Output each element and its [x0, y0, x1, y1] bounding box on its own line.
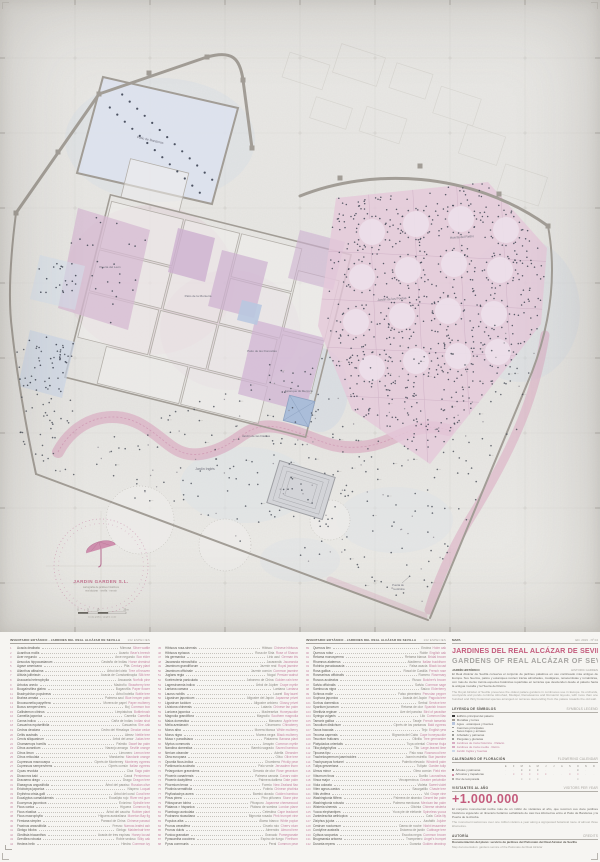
species-common: Mandarino: [109, 755, 124, 759]
species-common: Palmera datilera: [259, 778, 282, 782]
species-common-en: Seville orange: [130, 746, 150, 750]
leader-dots: [56, 796, 107, 800]
species-number: 124: [306, 805, 313, 809]
map-area: Patio de BanderasPuerta del LeónPatio de…: [0, 0, 600, 632]
leader-dots: [201, 768, 250, 772]
species-common: Palo verde: [258, 764, 273, 768]
species-common-en: Black locust: [429, 664, 446, 668]
species-number: 47: [158, 655, 165, 659]
species-number: 18: [10, 723, 17, 727]
species-common: Tulipán: [417, 764, 427, 768]
species-common-en: Japanese cheesewood: [265, 801, 298, 805]
species-latin: Cordyline australis: [313, 828, 339, 832]
species-number: 6: [10, 669, 17, 673]
species-latin: Prunus dulcis: [165, 828, 184, 832]
leader-dots: [38, 718, 110, 722]
species-common-en: Common sage: [425, 683, 446, 687]
species-common: Glicinia: [411, 805, 421, 809]
leader-dots: [338, 687, 419, 691]
leader-dots: [332, 777, 397, 781]
leader-dots: [53, 700, 102, 704]
scale-25: 25 m: [123, 610, 128, 612]
leader-dots: [344, 837, 404, 841]
legend-marker-icon: [452, 750, 455, 753]
leader-dots: [336, 718, 411, 722]
species-common: Olivo: [276, 755, 283, 759]
species-common: Trompetero: [406, 837, 422, 841]
leader-dots: [48, 741, 114, 745]
species-common-en: Russian olive: [131, 783, 150, 787]
species-number: 71: [158, 764, 165, 768]
species-number: 45: [158, 646, 165, 650]
address-block: Patronato del Real Alcázar Patio de Band…: [452, 851, 598, 852]
legend-marker-icon: [452, 742, 455, 745]
species-common-en: New Zealand flax: [273, 783, 298, 787]
legend-item: Jardín Inglés y huertas: [452, 749, 598, 753]
species-number: 68: [158, 751, 165, 755]
visitors-title: VISITANTES AL AÑO: [452, 786, 488, 790]
leader-dots: [346, 800, 391, 804]
visitors-section-header: VISITANTES AL AÑO VISITORS PER YEAR: [452, 786, 598, 792]
species-latin: Platanus × hispanica: [165, 805, 195, 809]
species-number: 60: [158, 714, 165, 718]
species-latin: Jasminum grandiflorum: [165, 664, 198, 668]
species-number: 42: [10, 833, 17, 837]
species-number: 118: [306, 778, 313, 782]
species-number: 131: [306, 837, 313, 841]
leader-dots: [336, 818, 421, 822]
species-common-en: Date palm: [283, 778, 298, 782]
species-common-en: Paper flower: [132, 687, 150, 691]
species-latin: Laurus nobilis: [165, 692, 185, 696]
species-number: 115: [306, 764, 313, 768]
species-common-en: Butcher's broom: [423, 678, 446, 682]
species-common-en: Chinese thuja: [427, 742, 447, 746]
species-latin: Ulmus minor: [313, 769, 331, 773]
species-number: 129: [306, 828, 313, 832]
species-latin: Callistemon citrinus: [17, 710, 45, 714]
species-common-en: Common jasmine: [273, 669, 298, 673]
species-latin: Syringa vulgaris: [313, 714, 336, 718]
species-number: 19: [10, 728, 17, 732]
species-common: Laurel: [273, 692, 282, 696]
species-number: 59: [158, 710, 165, 714]
leader-dots: [346, 759, 400, 763]
map-label: Puerta del León: [99, 265, 121, 269]
species-number: 63: [158, 728, 165, 732]
species-common: Latania: [261, 705, 271, 709]
leader-dots: [39, 655, 113, 659]
species-common: Pita: [124, 664, 130, 668]
species-number: 107: [306, 728, 313, 732]
species-common-en: Bottle tree: [135, 692, 150, 696]
species-latin: Ficus macrophylla: [17, 814, 43, 818]
credits-title: AUTORÍA: [452, 834, 469, 838]
leader-dots: [48, 823, 110, 827]
species-latin: Musa × paradisiaca: [165, 737, 193, 741]
species-number: 5: [10, 664, 17, 668]
leader-dots: [337, 841, 408, 845]
calendar-mark: ×: [518, 777, 526, 782]
leader-dots: [340, 696, 401, 700]
species-number: 52: [158, 678, 165, 682]
legend-title: LEYENDA DE SÍMBOLOS: [452, 707, 496, 711]
leader-dots: [336, 773, 417, 777]
species-number: 10: [10, 687, 17, 691]
species-latin: Pyrus communis: [165, 842, 189, 846]
species-common-en: Rose geranium: [276, 769, 298, 773]
species-number: 53: [158, 683, 165, 687]
species-common-en: Golden rain tree: [275, 678, 298, 682]
species-common-en: Common lilac: [427, 714, 446, 718]
species-number: 13: [10, 701, 17, 705]
species-number: 27: [10, 764, 17, 768]
leader-dots: [350, 814, 424, 818]
species-common-en: Firethorn: [285, 837, 298, 841]
species-number: 104: [306, 714, 313, 718]
species-number: 49: [158, 664, 165, 668]
species-common: Palo rosa: [409, 751, 422, 755]
species-latin: Schinus molle: [313, 692, 333, 696]
calendar-mark: [550, 777, 558, 782]
species-column-header: INVENTARIO BOTÁNICO · JARDINES DEL REAL …: [10, 638, 150, 644]
leader-dots: [197, 805, 249, 809]
species-common: Pino piñonero: [261, 796, 281, 800]
species-common-en: Dragon tree: [133, 778, 150, 782]
species-latin: Pelargonium graveolens: [165, 769, 199, 773]
species-number: 9: [10, 683, 17, 687]
species-common-en: Honeysuckle: [280, 710, 298, 714]
species-latin: Olea europaea: [165, 755, 186, 759]
species-common-en: River red gum: [130, 796, 150, 800]
species-number: 35: [10, 801, 17, 805]
species-number: 125: [306, 810, 313, 814]
species-common: Aladierno: [408, 660, 421, 664]
leader-dots: [36, 805, 118, 809]
species-common: Almez: [125, 733, 134, 737]
visitors-paragraph-en: The monument welcomes over one million v…: [452, 821, 598, 829]
species-number: 20: [10, 733, 17, 737]
calendar-mark: ×: [574, 777, 582, 782]
species-latin: Punica granatum: [165, 833, 189, 837]
species-number: 128: [306, 824, 313, 828]
species-latin: Ruscus aculeatus: [313, 678, 338, 682]
species-number: 84: [158, 824, 165, 828]
species-common-en: Mexican fan palm: [421, 801, 446, 805]
crop-mark: [591, 2, 598, 9]
species-common: Árbol del caucho: [106, 810, 130, 814]
species-common-en: Common broom: [423, 833, 446, 837]
leader-dots: [193, 700, 252, 704]
species-latin: Arbutus unedo: [17, 683, 38, 687]
leader-dots: [190, 687, 271, 691]
leader-dots: [183, 727, 253, 731]
species-latin: Sambucus nigra: [313, 687, 336, 691]
species-latin: Elaeagnus angustifolia: [17, 783, 49, 787]
species-common-en: Spindle tree: [133, 801, 150, 805]
species-number: 62: [158, 723, 165, 727]
species-common: Madroño: [114, 683, 127, 687]
species-common-en: Chinese photinia: [274, 787, 298, 791]
species-number: 75: [158, 783, 165, 787]
column-header-title: INVENTARIO BOTÁNICO · JARDINES DEL REAL …: [10, 638, 120, 642]
species-common: Arrayán: [263, 742, 274, 746]
leader-dots: [341, 827, 398, 831]
species-number: 69: [158, 755, 165, 759]
leader-dots: [184, 732, 254, 736]
species-common: Evónimo: [119, 801, 131, 805]
calendar-mark: ×: [534, 777, 542, 782]
species-common-en: Dwarf fan palm: [129, 742, 150, 746]
species-number: 108: [306, 733, 313, 737]
species-common: Taraje: [413, 719, 422, 723]
species-latin: Broussonetia papyrifera: [17, 701, 51, 705]
species-common: Retama blanca: [405, 655, 426, 659]
species-number: 50: [158, 669, 165, 673]
leader-dots: [340, 732, 390, 736]
species-number: 113: [306, 755, 313, 759]
leader-dots: [48, 832, 96, 836]
species-number: 16: [10, 714, 17, 718]
species-latin: Eriobotrya japonica: [17, 787, 44, 791]
leader-dots: [42, 746, 103, 750]
species-common: Palmera canaria: [255, 774, 278, 778]
calendar-row: Flor de temporada××××: [452, 777, 598, 782]
species-number: 64: [158, 733, 165, 737]
leader-dots: [345, 741, 405, 745]
leader-dots: [186, 827, 263, 831]
species-latin: Lantana camara: [165, 687, 188, 691]
leader-dots: [196, 773, 254, 777]
mercury-pond: [283, 395, 315, 427]
species-common: Geranio de olor: [253, 769, 275, 773]
species-latin: Cupressus macrocarpa: [17, 760, 50, 764]
species-number: 126: [306, 814, 313, 818]
leader-dots: [46, 737, 111, 741]
calendar-mark: [542, 777, 550, 782]
poster-root: Patio de BanderasPuerta del LeónPatio de…: [0, 0, 600, 862]
leader-dots: [47, 791, 112, 795]
species-common: Drago: [123, 778, 132, 782]
species-number: 34: [10, 796, 17, 800]
species-number: 130: [306, 833, 313, 837]
species-common: Romero: [419, 673, 430, 677]
leader-dots: [43, 818, 99, 822]
leader-dots: [333, 646, 419, 650]
leader-dots: [339, 709, 398, 713]
leader-dots: [194, 777, 257, 781]
leader-dots: [197, 837, 259, 841]
species-number: 61: [158, 719, 165, 723]
leader-dots: [194, 746, 249, 750]
species-common: Celestina: [263, 810, 276, 814]
species-common: Casuarina: [122, 723, 137, 727]
species-latin: Strelitzia reginae: [313, 710, 337, 714]
species-common: Dama de noche: [399, 824, 422, 828]
species-common-en: Angel's trumpet: [424, 837, 446, 841]
species-common: Chumbera: [265, 760, 280, 764]
species-latin: Koelreuteria paniculata: [165, 678, 198, 682]
species-common-en: Almond tree: [281, 828, 298, 832]
species-common-en: Crape myrtle: [280, 683, 298, 687]
species-common-en: Pink trumpet vine: [273, 814, 298, 818]
species-number: 132: [306, 842, 313, 846]
species-common-en: Moreton Bay fig: [128, 814, 150, 818]
species-latin: Canna indica: [17, 719, 36, 723]
species-latin: Plumbago auriculata: [165, 810, 194, 814]
species-column-2: 45Hibiscus rosa-sinensisHibiscoChinese h…: [158, 638, 298, 850]
species-latin: Phormium tenax: [165, 783, 188, 787]
crop-mark: [591, 853, 598, 860]
leader-dots: [40, 732, 123, 736]
column-spacer: [158, 638, 298, 646]
species-common: Almendro: [266, 828, 280, 832]
leader-dots: [43, 837, 114, 841]
species-latin: Vinca major: [313, 778, 330, 782]
species-common-en: Black mulberry: [277, 733, 298, 737]
species-number: 15: [10, 710, 17, 714]
species-common: Higuera: [120, 805, 131, 809]
leader-dots: [42, 727, 99, 731]
species-number: 11: [10, 692, 17, 696]
species-common: Árbol botella: [116, 692, 134, 696]
species-common-en: Grape vine: [430, 792, 446, 796]
leader-dots: [40, 773, 122, 777]
leader-dots: [192, 709, 260, 713]
species-common-en: Cherry plum: [281, 824, 298, 828]
leader-dots: [39, 827, 115, 831]
leader-dots: [193, 800, 248, 804]
calendar-title-en: FLOWERING CALENDAR: [558, 757, 598, 761]
species-common-en: She-oak: [138, 723, 150, 727]
species-common-en: Sweet violet: [429, 783, 446, 787]
species-latin: Ficus carica: [17, 805, 34, 809]
species-common-en: Rosewood tree: [425, 751, 446, 755]
legend-marker-icon: [452, 738, 454, 740]
calendar-row-bullet: [452, 778, 454, 780]
species-common-en: English oak: [430, 651, 446, 655]
legend-marker-icon: [452, 731, 454, 733]
species-latin: Buxus sempervirens: [17, 705, 46, 709]
species-number: 99: [306, 692, 313, 696]
species-latin: Photinia serratifolia: [165, 787, 192, 791]
species-common-en: Honey locust: [132, 833, 150, 837]
species-latin: Acer negundo: [17, 655, 37, 659]
species-common: Lirio azul: [267, 655, 280, 659]
leader-dots: [199, 646, 260, 650]
species-latin: Cercis siliquastrum: [17, 737, 44, 741]
species-common-en: Prickly pear: [281, 760, 298, 764]
kicker-left: MAPA: [452, 638, 461, 642]
calendar-section-header: CALENDARIO DE FLORACIÓN FLOWERING CALEND…: [452, 757, 598, 763]
legend-section-header: LEYENDA DE SÍMBOLOS SYMBOLS LEGEND: [452, 707, 598, 713]
species-latin: Livistona chinensis: [165, 705, 192, 709]
leader-dots: [196, 809, 260, 813]
leader-dots: [335, 727, 419, 731]
species-common-en: Peruvian pepper: [423, 692, 446, 696]
species-common-en: Silky oak: [137, 837, 150, 841]
species-common: Níspero: [127, 787, 138, 791]
species-number: 67: [158, 746, 165, 750]
species-common: Árbol del cielo: [107, 669, 127, 673]
species-common: Adelfa: [274, 751, 283, 755]
species-number: 26: [10, 760, 17, 764]
species-common: Jazmín real: [260, 664, 276, 668]
leader-dots: [42, 673, 98, 677]
leader-dots: [194, 705, 259, 709]
species-common: Olivilla: [412, 737, 421, 741]
species-latin: Nandina domestica: [165, 746, 192, 750]
address-line: Patronato del Real Alcázar: [452, 851, 598, 852]
species-number: 57: [158, 701, 165, 705]
species-common-en: Bald cypress: [428, 723, 446, 727]
species-number: 51: [158, 673, 165, 677]
leader-dots: [338, 746, 412, 750]
species-common-en: Pagoda tree: [429, 696, 446, 700]
species-common-en: Coral tree: [136, 792, 150, 796]
species-common-en: Sacred bamboo: [275, 746, 298, 750]
species-number: 72: [158, 769, 165, 773]
species-common-en: Spanish broom: [425, 705, 446, 709]
species-latin: Gleditsia triacanthos: [17, 833, 46, 837]
species-common: Formio: [262, 783, 272, 787]
species-common: Árbol del amor: [113, 737, 134, 741]
species-common-en: Persian walnut: [277, 673, 298, 677]
leader-dots: [195, 668, 249, 672]
species-number: 102: [306, 705, 313, 709]
species-common-en: Norfolk pine: [133, 678, 150, 682]
species-latin: Duranta repens: [313, 842, 335, 846]
species-common-en: Pomegranate: [279, 833, 298, 837]
species-latin: Cedrus deodara: [17, 728, 40, 732]
calendar-mark: [510, 777, 518, 782]
species-column-header: INVENTARIO BOTÁNICO · JARDINES DEL REAL …: [306, 638, 446, 644]
species-common: Nogal: [267, 673, 275, 677]
species-common-en: Laurustinus: [430, 774, 446, 778]
leader-dots: [340, 832, 400, 836]
species-latin: Malus domestica: [165, 719, 189, 723]
species-latin: Tecoma capensis: [313, 733, 338, 737]
species-common: Lantana: [273, 687, 285, 691]
leader-dots: [197, 682, 254, 686]
species-common: Fotinia: [263, 787, 273, 791]
species-common-en: Bottlebrush: [134, 710, 150, 714]
species-common: Retama de olor: [401, 705, 423, 709]
species-common: Tejo: [422, 728, 428, 732]
leader-dots: [187, 655, 265, 659]
species-number: 81: [158, 810, 165, 814]
species-common: Drácena de jardín: [400, 828, 425, 832]
map-label: Puerta de: [392, 583, 404, 587]
leader-dots: [42, 646, 118, 650]
species-number: 33: [10, 792, 17, 796]
species-number: 2: [10, 651, 17, 655]
species-number: 25: [10, 755, 17, 759]
species-common-en: English yew: [429, 728, 446, 732]
leader-dots: [184, 796, 260, 800]
species-common-en: Common box: [131, 705, 150, 709]
leader-dots: [188, 755, 273, 759]
species-number: 87: [158, 837, 165, 841]
species-number: 127: [306, 819, 313, 823]
species-common-en: Cape honeysuckle: [420, 733, 446, 737]
species-number: 96: [306, 678, 313, 682]
species-common-en: Sago palm: [135, 769, 150, 773]
calendar-mark: [590, 777, 598, 782]
species-number: 95: [306, 673, 313, 677]
species-latin: Citrus reticulata: [17, 755, 39, 759]
species-number: 14: [10, 705, 17, 709]
